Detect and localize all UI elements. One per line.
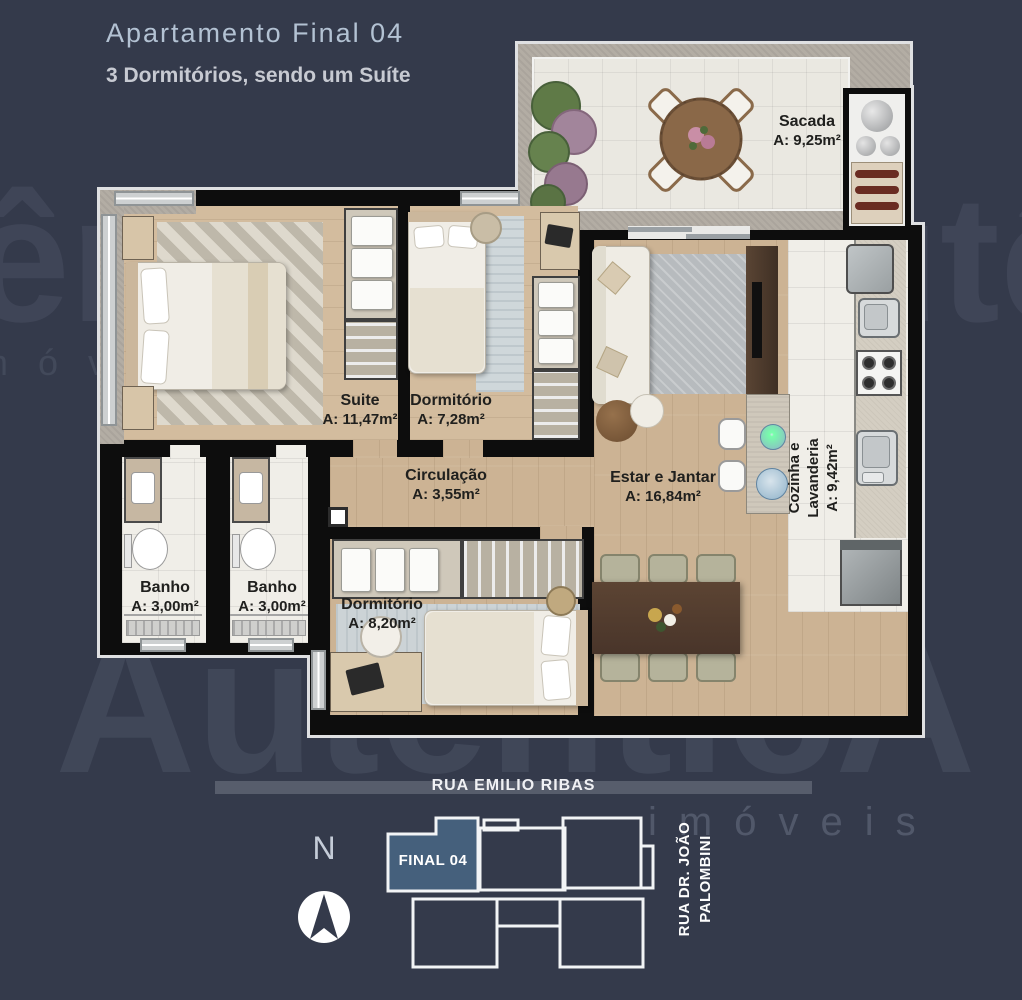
kitchen-sink-2-tray xyxy=(862,472,884,483)
page-subtitle: 3 Dormitórios, sendo um Suíte xyxy=(106,64,411,88)
dormitorio1-area: A: 7,28m² xyxy=(391,411,511,430)
banho1-shower xyxy=(126,620,200,636)
banho2-name: Banho xyxy=(222,578,322,598)
banho1-name: Banho xyxy=(115,578,215,598)
cooktop-burner-1 xyxy=(862,356,876,370)
dormitorio1-door-opening xyxy=(443,440,483,458)
banho1-door-opening xyxy=(170,445,200,459)
cooktop-burner-4 xyxy=(882,376,896,390)
cozinha-name: Cozinha e Lavanderia xyxy=(786,438,822,517)
banho1-sink xyxy=(131,472,155,504)
dining-centerpiece-4 xyxy=(672,604,682,614)
dormitorio1-blanket xyxy=(410,288,484,372)
banho2-shower xyxy=(232,620,306,636)
banho2-area: A: 3,00m² xyxy=(222,598,322,617)
dormitorio1-wardrobe-rack xyxy=(532,370,580,440)
dormitorio2-side-table xyxy=(546,586,576,616)
dormitorio2-wardrobe-item-3 xyxy=(409,548,439,592)
dormitorio1-pillow-1 xyxy=(413,225,445,250)
cozinha-area: A: 9,42m² xyxy=(824,432,843,524)
sacada-area: A: 9,25m² xyxy=(737,132,877,151)
dormitorio2-wardrobe-item-1 xyxy=(341,548,371,592)
dormitorio1-wardrobe-item-3 xyxy=(538,338,574,364)
site-plan xyxy=(375,795,665,980)
suite-window-top xyxy=(114,191,194,206)
cooktop xyxy=(856,350,902,396)
site-unit-label: FINAL 04 xyxy=(388,852,478,869)
sliding-door-panel-1 xyxy=(628,227,692,232)
banho1-area: A: 3,00m² xyxy=(115,598,215,617)
suite-bed-headboard xyxy=(126,262,138,390)
suite-wardrobe-item-3 xyxy=(351,280,393,310)
bar-stool-1 xyxy=(718,418,746,450)
banho2-toilet xyxy=(240,528,276,570)
dormitorio1-name: Dormitório xyxy=(391,391,511,411)
dining-chair-6 xyxy=(696,652,736,682)
suite-wardrobe-item-1 xyxy=(351,216,393,246)
suite-nightstand-1 xyxy=(122,216,154,260)
bbq-skewer-2 xyxy=(855,186,899,194)
pouf-white xyxy=(630,394,664,428)
duct-shaft xyxy=(328,507,348,527)
kitchen-sink-2-bowl xyxy=(862,436,890,468)
dining-chair-5 xyxy=(648,652,688,682)
suite-wardrobe-item-2 xyxy=(351,248,393,278)
bar-decor-1 xyxy=(760,424,786,450)
suite-window-left xyxy=(101,214,117,426)
banho2-door-opening xyxy=(276,445,306,459)
dining-centerpiece-2 xyxy=(664,614,676,626)
sliding-door-panel-2 xyxy=(686,234,750,239)
estar-jantar-name: Estar e Jantar xyxy=(593,468,733,488)
cozinha-label: Cozinha e Lavanderia A: 9,42m² xyxy=(786,432,858,524)
estar-rug xyxy=(650,254,746,394)
dining-chair-2 xyxy=(648,554,688,584)
street-top-name: RUA EMILIO RIBAS xyxy=(215,777,812,795)
circulacao-label: Circulação A: 3,55m² xyxy=(386,466,506,505)
banho2-sink xyxy=(239,472,263,504)
sacada-name: Sacada xyxy=(737,112,877,132)
dormitorio1-label: Dormitório A: 7,28m² xyxy=(391,391,511,430)
banho1-window xyxy=(140,638,186,652)
fridge xyxy=(846,244,894,294)
dormitorio2-window xyxy=(311,650,326,710)
dormitorio2-pillow-2 xyxy=(540,659,571,701)
banho1-toilet-tank xyxy=(124,534,132,568)
circulacao-name: Circulação xyxy=(386,466,506,486)
banho1-label: Banho A: 3,00m² xyxy=(115,578,215,617)
page-title: Apartamento Final 04 xyxy=(106,18,404,49)
dormitorio1-pouf xyxy=(470,212,502,244)
dining-chair-3 xyxy=(696,554,736,584)
dining-chair-1 xyxy=(600,554,640,584)
dormitorio1-wardrobe-item-1 xyxy=(538,282,574,308)
dormitorio1-laptop xyxy=(544,224,573,248)
bbq-skewer-3 xyxy=(855,202,899,210)
suite-pillow-2 xyxy=(140,329,170,385)
dormitorio2-wardrobe-item-2 xyxy=(375,548,405,592)
dormitorio2-pillow-1 xyxy=(540,615,571,657)
street-right-name: RUA DR. JOÃO PALOMBINI xyxy=(674,814,718,944)
kitchen-sink-1-bowl xyxy=(864,304,888,330)
bar-decor-2 xyxy=(756,468,788,500)
banho2-label: Banho A: 3,00m² xyxy=(222,578,322,617)
compass-icon xyxy=(294,882,354,952)
dormitorio2-area: A: 8,20m² xyxy=(322,615,442,634)
dormitorio1-window xyxy=(460,191,520,206)
dining-centerpiece-3 xyxy=(656,622,666,632)
dining-chair-4 xyxy=(600,652,640,682)
dormitorio1-wardrobe-item-2 xyxy=(538,310,574,336)
floor-plan-page: AutênticA AutênticA imóveis AutênticA im… xyxy=(0,0,1022,1000)
banho2-window xyxy=(248,638,294,652)
bbq-sink-bowl-small-2 xyxy=(880,136,900,156)
circulacao-area: A: 3,55m² xyxy=(386,486,506,505)
sacada-label: Sacada A: 9,25m² xyxy=(737,112,877,151)
dormitorio2-name: Dormitório xyxy=(322,595,442,615)
banho2-toilet-tank xyxy=(232,534,240,568)
cooktop-burner-3 xyxy=(862,376,876,390)
suite-door-opening xyxy=(353,440,397,458)
suite-wardrobe-rack xyxy=(344,320,398,380)
dormitorio2-blanket xyxy=(426,612,534,704)
tv xyxy=(752,282,762,358)
suite-bed-throw xyxy=(248,263,268,389)
washing-machine-panel xyxy=(840,540,902,550)
dining-centerpiece-1 xyxy=(648,608,662,622)
estar-jantar-label: Estar e Jantar A: 16,84m² xyxy=(593,468,733,507)
tv-panel xyxy=(746,246,778,394)
banho1-toilet xyxy=(132,528,168,570)
suite-nightstand-2 xyxy=(122,386,154,430)
bbq-skewer-1 xyxy=(855,170,899,178)
dormitorio2-label: Dormitório A: 8,20m² xyxy=(322,595,442,634)
compass-north-letter: N xyxy=(304,830,344,867)
estar-jantar-area: A: 16,84m² xyxy=(593,488,733,507)
cooktop-burner-2 xyxy=(882,356,896,370)
dormitorio2-headboard xyxy=(576,610,588,706)
suite-pillow-1 xyxy=(140,267,170,325)
